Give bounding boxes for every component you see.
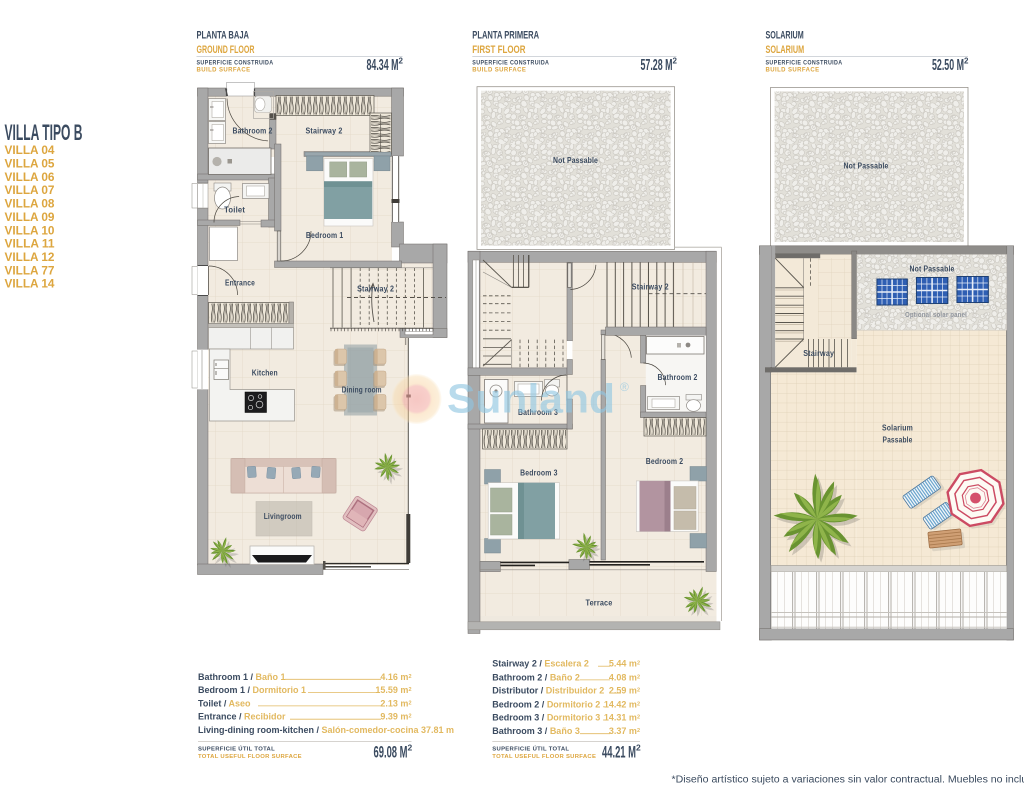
svg-text:VILLA 08: VILLA 08: [5, 197, 55, 211]
svg-text:SOLARIUM: SOLARIUM: [766, 30, 804, 42]
svg-text:SUPERFICIE CONSTRUIDA: SUPERFICIE CONSTRUIDA: [197, 60, 274, 67]
svg-text:Bathroom 2: Bathroom 2: [658, 373, 698, 382]
svg-text:4.08 m2: 4.08 m2: [609, 672, 640, 682]
svg-text:Bedroom 2 / Dormitorio 2: Bedroom 2 / Dormitorio 2: [492, 699, 600, 709]
svg-text:BUILD SURFACE: BUILD SURFACE: [766, 67, 820, 74]
svg-text:Stairway 2: Stairway 2: [306, 126, 343, 135]
svg-text:Bedroom 3: Bedroom 3: [520, 468, 558, 477]
svg-text:VILLA 09: VILLA 09: [5, 210, 55, 224]
svg-text:Stairway 2: Stairway 2: [632, 282, 669, 291]
svg-text:Entrance / Recibidor: Entrance / Recibidor: [198, 712, 286, 722]
svg-text:Not Passable: Not Passable: [910, 264, 955, 273]
svg-text:VILLA 07: VILLA 07: [5, 183, 55, 197]
svg-text:69.08 M: 69.08 M: [374, 744, 408, 762]
svg-text:BUILD SURFACE: BUILD SURFACE: [472, 67, 526, 74]
svg-text:Entrance: Entrance: [225, 278, 255, 287]
svg-text:VILLA 10: VILLA 10: [5, 223, 55, 237]
svg-text:84.34 M: 84.34 M: [367, 57, 399, 74]
svg-text:57.28 M: 57.28 M: [641, 57, 673, 74]
svg-text:PLANTA BAJA: PLANTA BAJA: [197, 30, 250, 42]
svg-text:Optional solar panel: Optional solar panel: [905, 312, 967, 319]
svg-text:52.50 M: 52.50 M: [932, 57, 964, 74]
svg-text:VILLA 11: VILLA 11: [5, 237, 55, 251]
svg-text:VILLA TIPO B: VILLA TIPO B: [5, 120, 83, 145]
svg-text:Toilet / Aseo: Toilet / Aseo: [198, 698, 251, 708]
svg-text:2: 2: [636, 743, 641, 753]
svg-text:Stairway: Stairway: [803, 349, 834, 358]
svg-text:Bedroom 1: Bedroom 1: [306, 231, 344, 240]
svg-text:FIRST FLOOR: FIRST FLOOR: [472, 44, 525, 56]
svg-text:VILLA 05: VILLA 05: [5, 157, 55, 171]
svg-text:PLANTA PRIMERA: PLANTA PRIMERA: [472, 30, 539, 42]
svg-text:3.37 m2: 3.37 m2: [609, 726, 640, 736]
svg-text:Toilet: Toilet: [224, 206, 245, 215]
svg-text:Not Passable: Not Passable: [553, 156, 598, 165]
svg-text:Solarium: Solarium: [882, 424, 913, 433]
svg-text:Bedroom 3 / Dormitorio 3: Bedroom 3 / Dormitorio 3: [492, 713, 600, 723]
svg-text:SUPERFICIE CONSTRUIDA: SUPERFICIE CONSTRUIDA: [472, 60, 549, 67]
svg-text:Stairway 2: Stairway 2: [357, 285, 394, 294]
svg-text:14.42 m2: 14.42 m2: [604, 699, 640, 709]
svg-text:Sunland: Sunland: [447, 376, 615, 422]
svg-text:SUPERFICIE ÚTIL TOTAL: SUPERFICIE ÚTIL TOTAL: [492, 746, 569, 753]
svg-text:Kitchen: Kitchen: [252, 368, 278, 377]
svg-text:TOTAL USEFUL FLOOR SURFACE: TOTAL USEFUL FLOOR SURFACE: [492, 754, 596, 760]
svg-text:®: ®: [620, 380, 629, 394]
svg-text:TOTAL USEFUL FLOOR SURFACE: TOTAL USEFUL FLOOR SURFACE: [198, 754, 302, 760]
svg-text:2: 2: [673, 57, 678, 66]
svg-text:Not Passable: Not Passable: [844, 162, 889, 171]
svg-text:9.39 m2: 9.39 m2: [380, 712, 411, 722]
svg-text:Bathroom 3 / Baño 3: Bathroom 3 / Baño 3: [492, 726, 580, 736]
svg-text:Living-dining room-kitchen / S: Living-dining room-kitchen / Salón-comed…: [198, 725, 454, 735]
svg-text:VILLA 14: VILLA 14: [5, 277, 55, 291]
svg-text:Bathroom 2 / Baño 2: Bathroom 2 / Baño 2: [492, 672, 580, 682]
svg-text:Bedroom 1 / Dormitorio 1: Bedroom 1 / Dormitorio 1: [198, 685, 306, 695]
svg-text:SOLARIUM: SOLARIUM: [766, 44, 805, 56]
svg-text:Bathroom 1 / Baño 1: Bathroom 1 / Baño 1: [198, 672, 286, 682]
svg-text:BUILD SURFACE: BUILD SURFACE: [197, 67, 251, 74]
svg-text:VILLA 04: VILLA 04: [5, 143, 55, 157]
svg-text:2: 2: [399, 57, 404, 66]
svg-text:Distributor / Distribuidor 2: Distributor / Distribuidor 2: [492, 686, 604, 696]
svg-text:Livingroom: Livingroom: [264, 512, 302, 521]
svg-text:5.44 m2: 5.44 m2: [609, 659, 640, 669]
svg-text:14.31 m2: 14.31 m2: [604, 713, 640, 723]
svg-text:4.16 m2: 4.16 m2: [380, 672, 411, 682]
svg-text:2.59 m2: 2.59 m2: [609, 686, 640, 696]
svg-text:2: 2: [408, 743, 413, 753]
svg-text:Dining room: Dining room: [342, 386, 382, 395]
svg-text:2.13 m2: 2.13 m2: [380, 698, 411, 708]
svg-text:VILLA 77: VILLA 77: [5, 263, 55, 277]
svg-text:*Diseño artístico sujeto a var: *Diseño artístico sujeto a variaciones s…: [672, 775, 1024, 786]
svg-text:SUPERFICIE CONSTRUIDA: SUPERFICIE CONSTRUIDA: [766, 60, 843, 67]
svg-text:Bedroom 2: Bedroom 2: [646, 457, 684, 466]
svg-text:Terrace: Terrace: [586, 599, 613, 608]
svg-text:Bathroom 2: Bathroom 2: [233, 127, 273, 136]
svg-text:VILLA 12: VILLA 12: [5, 250, 55, 264]
svg-text:2: 2: [964, 57, 969, 66]
svg-text:Passable: Passable: [883, 436, 913, 445]
svg-text:VILLA 06: VILLA 06: [5, 170, 55, 184]
svg-text:SUPERFICIE ÚTIL TOTAL: SUPERFICIE ÚTIL TOTAL: [198, 746, 275, 753]
svg-text:15.59 m2: 15.59 m2: [375, 685, 411, 695]
svg-text:44.21 M: 44.21 M: [602, 744, 636, 762]
svg-text:GROUND FLOOR: GROUND FLOOR: [197, 44, 255, 56]
svg-text:Stairway 2 / Escalera 2: Stairway 2 / Escalera 2: [492, 659, 589, 669]
